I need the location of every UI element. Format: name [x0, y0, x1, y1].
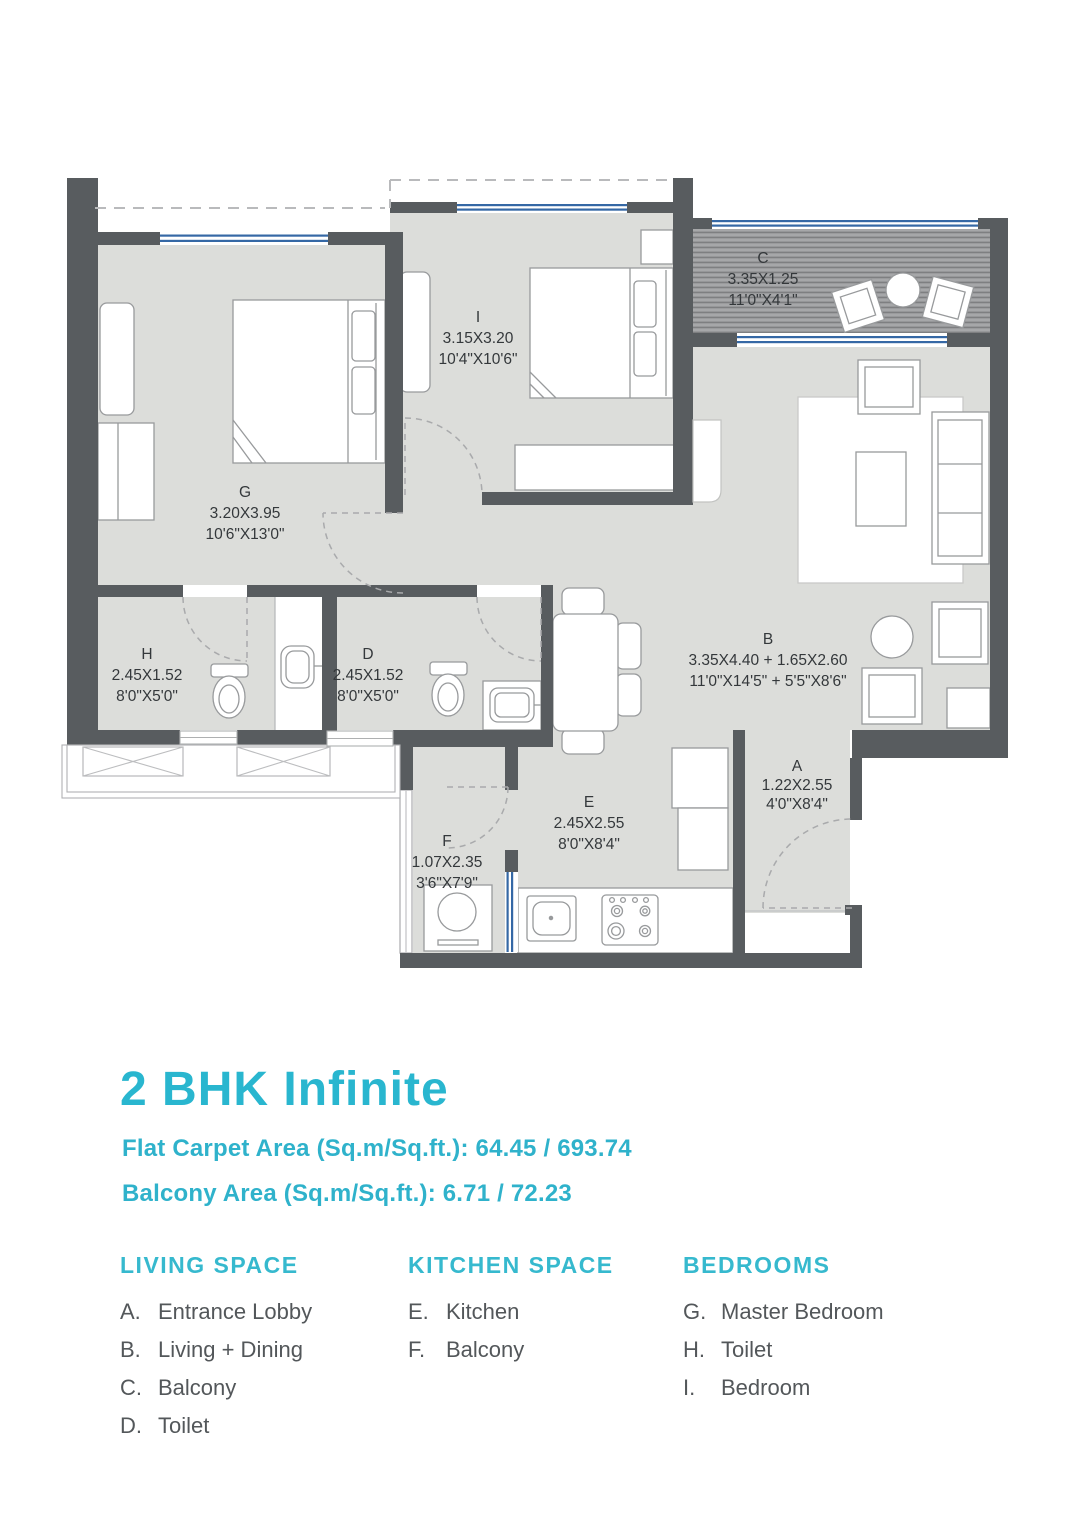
room-label-e-letter: E	[584, 794, 594, 811]
room-label-f-letter: F	[442, 833, 451, 850]
stove-icon	[602, 895, 658, 945]
legend-label: Balcony	[446, 1337, 524, 1363]
legend-item-g: G. Master Bedroom	[683, 1299, 884, 1325]
room-label-i-letter: I	[476, 309, 480, 326]
legend-key: A.	[120, 1299, 158, 1325]
dresser-icon-2	[515, 445, 678, 490]
room-label-d-metric: 2.45X1.52	[333, 667, 404, 684]
legend-header-kitchen-space: KITCHEN SPACE	[408, 1252, 614, 1279]
washbasin-icon-2	[483, 681, 541, 730]
legend-item-e: E. Kitchen	[408, 1299, 614, 1325]
dresser-icon	[98, 423, 154, 520]
window-c-top	[712, 218, 978, 229]
coffee-table-icon	[856, 452, 906, 526]
legend-item-c: C. Balcony	[120, 1375, 312, 1401]
room-label-d-imperial: 8'0"X5'0"	[337, 688, 399, 705]
room-label-e-metric: 2.45X2.55	[554, 815, 625, 832]
room-label-a-letter: A	[792, 758, 803, 775]
wardrobe-icon	[100, 303, 134, 415]
service-ledge	[62, 745, 400, 798]
window-i	[457, 202, 627, 213]
nightstand-icon	[641, 230, 673, 264]
room-label-i-imperial: 10'4"X10'6"	[439, 351, 518, 368]
balcony-area-line: Balcony Area (Sq.m/Sq.ft.): 6.71 / 72.23	[122, 1180, 632, 1208]
floor-plan: G 3.20X3.95 10'6"X13'0" I 3.15X3.20 10'4…	[0, 0, 1080, 1020]
bed-icon	[233, 300, 385, 463]
legend-key: H.	[683, 1337, 721, 1363]
room-label-c-imperial: 11'0"X4'1"	[728, 292, 797, 309]
legend-key: D.	[120, 1413, 158, 1439]
room-label-g-imperial: 10'6"X13'0"	[206, 526, 285, 543]
kitchen-counter	[518, 888, 733, 953]
armchair-icon	[932, 602, 988, 664]
room-label-b-letter: B	[763, 631, 773, 648]
ledge-x-box	[83, 747, 183, 776]
legend-item-b: B. Living + Dining	[120, 1337, 312, 1363]
legend-label: Bedroom	[721, 1375, 810, 1401]
legend-key: B.	[120, 1337, 158, 1363]
legend-key: F.	[408, 1337, 446, 1363]
room-label-d-letter: D	[362, 646, 373, 663]
armchair-icon-2	[862, 668, 922, 724]
legend-label: Master Bedroom	[721, 1299, 884, 1325]
legend-header-bedrooms: BEDROOMS	[683, 1252, 884, 1279]
legend-item-f: F. Balcony	[408, 1337, 614, 1363]
room-label-e-imperial: 8'0"X8'4"	[558, 836, 620, 853]
room-label-h-imperial: 8'0"X5'0"	[116, 688, 178, 705]
carpet-area-line: Flat Carpet Area (Sq.m/Sq.ft.): 64.45 / …	[122, 1135, 632, 1163]
legend-column-kitchen-space: KITCHEN SPACE E. Kitchen F. Balcony	[408, 1252, 614, 1375]
louver-rail	[400, 790, 412, 953]
room-toilet-h	[98, 597, 275, 730]
wardrobe-icon-2	[400, 272, 430, 392]
tv-chair-icon	[858, 360, 920, 414]
room-label-f-metric: 1.07X2.35	[412, 854, 483, 871]
legend-label: Entrance Lobby	[158, 1299, 312, 1325]
legend-label: Toilet	[721, 1337, 772, 1363]
legend-column-bedrooms: BEDROOMS G. Master Bedroom H. Toilet I. …	[683, 1252, 884, 1413]
room-label-i-metric: 3.15X3.20	[443, 330, 514, 347]
legend-label: Kitchen	[446, 1299, 519, 1325]
legend-item-h: H. Toilet	[683, 1337, 884, 1363]
room-label-h-metric: 2.45X1.52	[112, 667, 183, 684]
corner-table-icon	[947, 688, 990, 728]
side-table-icon	[871, 616, 913, 658]
legend-item-a: A. Entrance Lobby	[120, 1299, 312, 1325]
fridge-icon	[672, 748, 728, 870]
room-label-h-letter: H	[141, 646, 152, 663]
legend-key: G.	[683, 1299, 721, 1325]
room-label-f-imperial: 3'6"X7'9"	[416, 875, 478, 892]
title-block: 2 BHK Infinite Flat Carpet Area (Sq.m/Sq…	[120, 1062, 632, 1225]
legend-column-living-space: LIVING SPACE A. Entrance Lobby B. Living…	[120, 1252, 312, 1451]
bed-icon-2	[530, 268, 673, 398]
room-label-g-metric: 3.20X3.95	[210, 505, 281, 522]
sofa-icon	[932, 412, 989, 564]
room-label-a-imperial: 4'0"X8'4"	[766, 796, 828, 813]
entry-threshold	[745, 913, 845, 953]
room-label-c-metric: 3.35X1.25	[728, 271, 799, 288]
legend-label: Toilet	[158, 1413, 209, 1439]
window-kitchen-f	[505, 872, 518, 952]
room-label-c-letter: C	[757, 250, 768, 267]
room-label-a-metric: 1.22X2.55	[762, 777, 833, 794]
ledge-x-box-2	[237, 747, 330, 776]
window-c-bottom	[737, 333, 947, 347]
sink-icon	[527, 896, 576, 941]
room-label-g-letter: G	[239, 484, 251, 501]
legend-item-d: D. Toilet	[120, 1413, 312, 1439]
page-title: 2 BHK Infinite	[120, 1062, 632, 1117]
legend-item-i: I. Bedroom	[683, 1375, 884, 1401]
legend-key: E.	[408, 1299, 446, 1325]
legend-label: Living + Dining	[158, 1337, 303, 1363]
washing-machine-icon	[424, 885, 492, 951]
legend-header-living-space: LIVING SPACE	[120, 1252, 312, 1279]
legend-key: C.	[120, 1375, 158, 1401]
shaft	[693, 420, 721, 502]
room-label-b-metric: 3.35X4.40 + 1.65X2.60	[688, 652, 847, 669]
round-table-icon	[886, 273, 920, 307]
legend-key: I.	[683, 1375, 721, 1401]
room-label-b-imperial: 11'0"X14'5" + 5'5"X8'6"	[689, 673, 846, 690]
floor-plan-svg: G 3.20X3.95 10'6"X13'0" I 3.15X3.20 10'4…	[0, 0, 1080, 1020]
window-g	[160, 232, 328, 245]
legend-label: Balcony	[158, 1375, 236, 1401]
